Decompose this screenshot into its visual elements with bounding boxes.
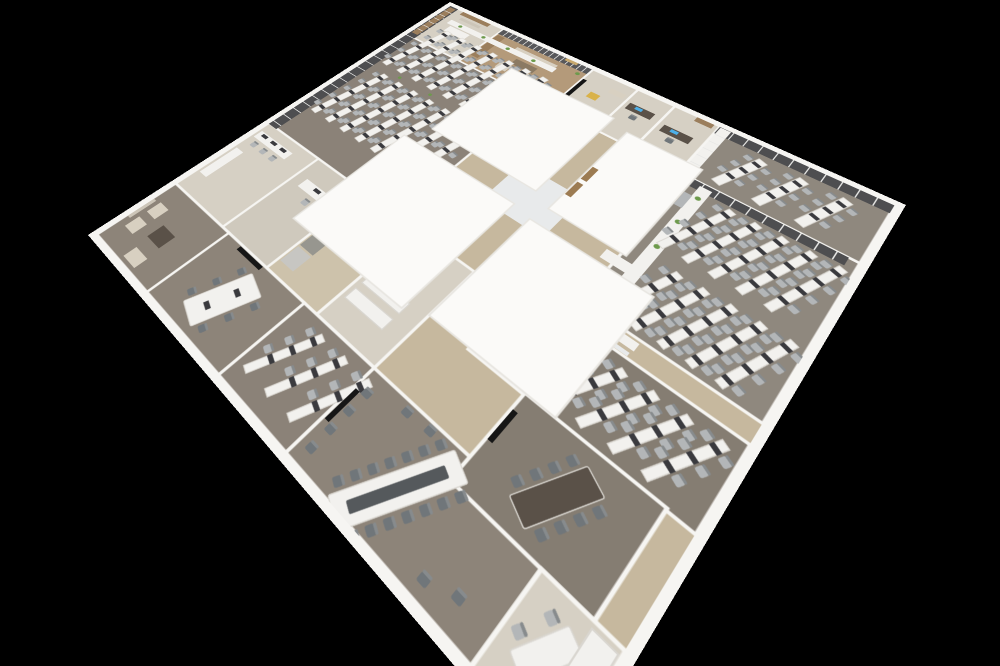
floorplan-scene — [88, 2, 906, 666]
office-floorplan-3d-render — [0, 0, 1000, 666]
floorplan-projected-plane — [88, 2, 906, 666]
